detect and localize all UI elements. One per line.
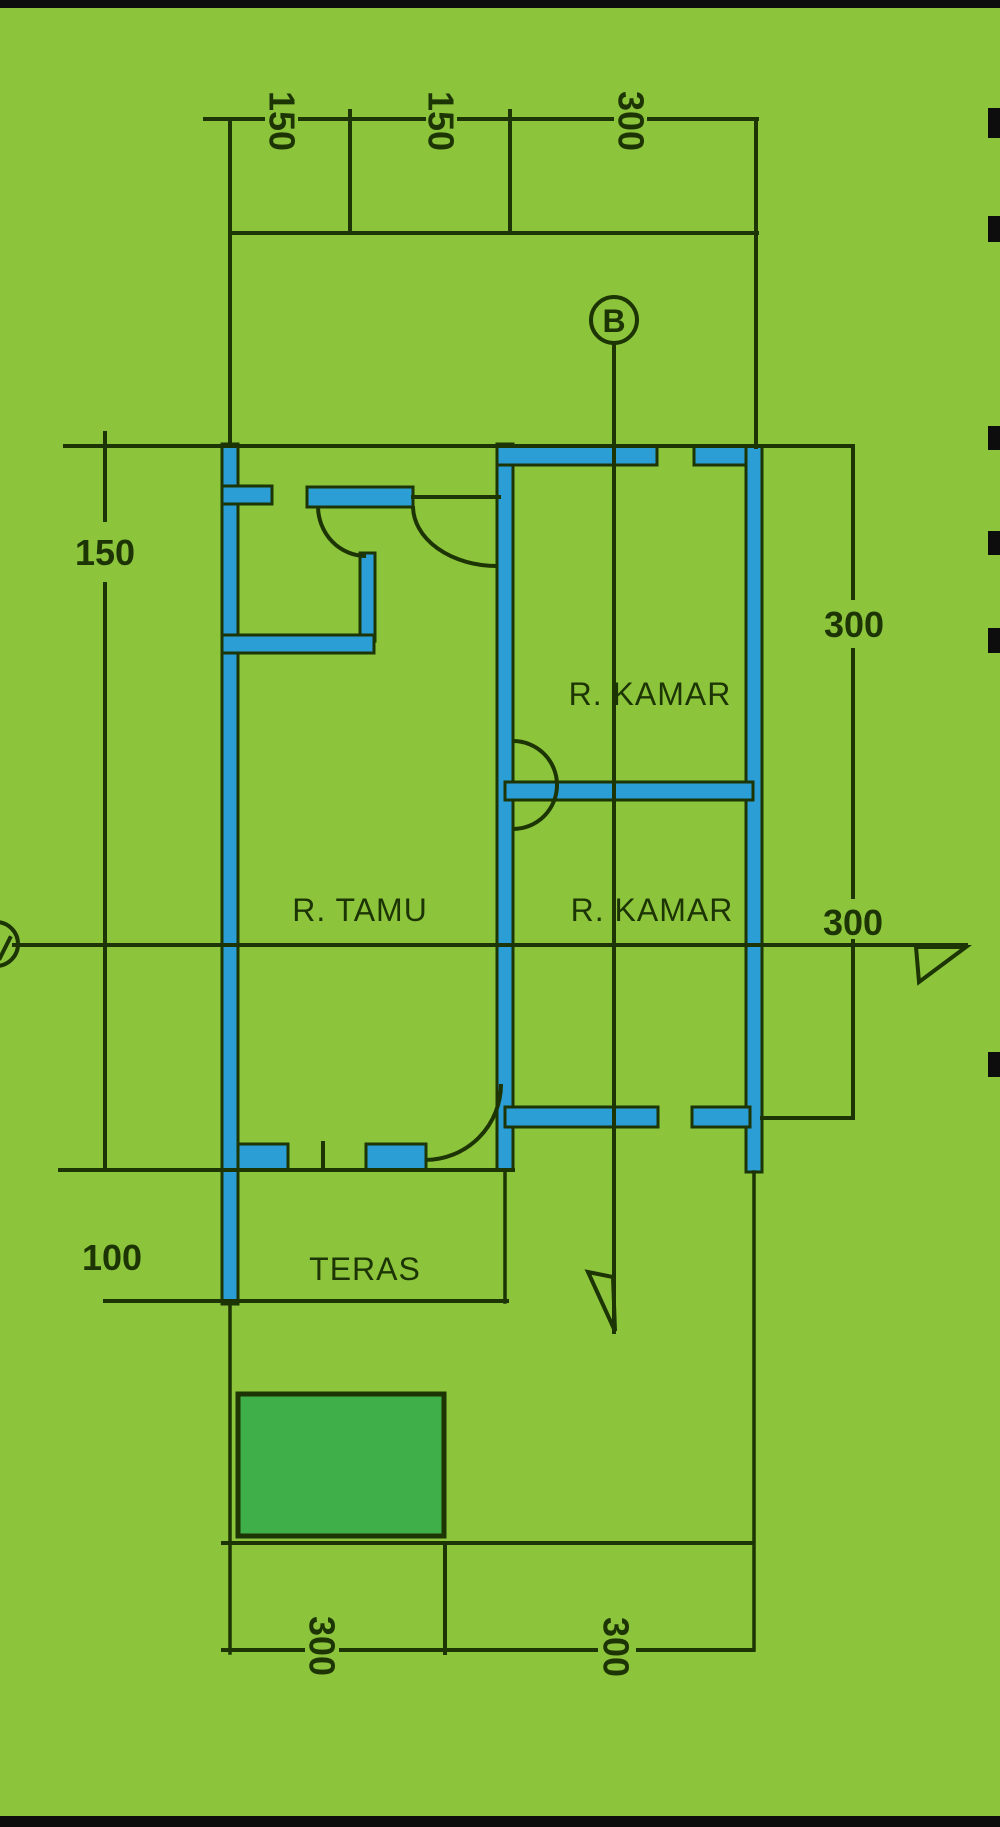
wall-bedroom-bottom-left	[505, 1107, 658, 1127]
dim-label-left-150: 150	[75, 532, 135, 573]
edge-tab-4	[988, 531, 1000, 555]
wall-middle	[497, 444, 513, 1170]
section-marker-b-label: B	[602, 303, 625, 339]
bottom-black-band	[0, 1816, 1000, 1827]
wall-bedroom-divider	[505, 782, 753, 800]
wall-bedroom-top-left	[497, 446, 657, 465]
dim-label-top-2: 150	[421, 91, 462, 151]
dim-label-left-100: 100	[82, 1237, 142, 1278]
top-black-band	[0, 0, 1000, 8]
wall-front-right	[366, 1144, 426, 1170]
room-label-tamu: R. TAMU	[292, 892, 428, 928]
wall-bathroom-bottom	[222, 635, 374, 653]
wall-bathroom-stub	[360, 553, 375, 641]
wall-stub-top-left	[222, 486, 272, 504]
dim-label-right-300-lower: 300	[823, 902, 883, 943]
room-label-kamar-top: R. KAMAR	[569, 676, 732, 712]
edge-tab-3	[988, 426, 1000, 450]
edge-tab-1	[988, 108, 1000, 138]
dim-label-bottom-1: 300	[302, 1616, 343, 1676]
wall-bathroom-top	[307, 487, 413, 507]
wall-right	[746, 446, 762, 1172]
floor-plan-drawing: 150 150 300 150 100 300 300 300 300 B R.…	[0, 0, 1000, 1827]
edge-tab-5	[988, 628, 1000, 653]
garden-rect	[238, 1394, 444, 1536]
wall-left	[222, 444, 238, 1304]
room-label-kamar-bottom: R. KAMAR	[571, 892, 734, 928]
dim-label-right-300-upper: 300	[824, 604, 884, 645]
wall-bedroom-bottom-right	[692, 1107, 750, 1127]
edge-tab-2	[988, 216, 1000, 242]
floor-plan-page: 150 150 300 150 100 300 300 300 300 B R.…	[0, 0, 1000, 1827]
edge-tab-6	[988, 1052, 1000, 1077]
room-label-teras: TERAS	[309, 1251, 421, 1287]
dim-label-bottom-2: 300	[596, 1617, 637, 1677]
dim-label-top-1: 150	[262, 91, 303, 151]
wall-front-left	[238, 1144, 288, 1170]
dim-label-top-3: 300	[611, 91, 652, 151]
